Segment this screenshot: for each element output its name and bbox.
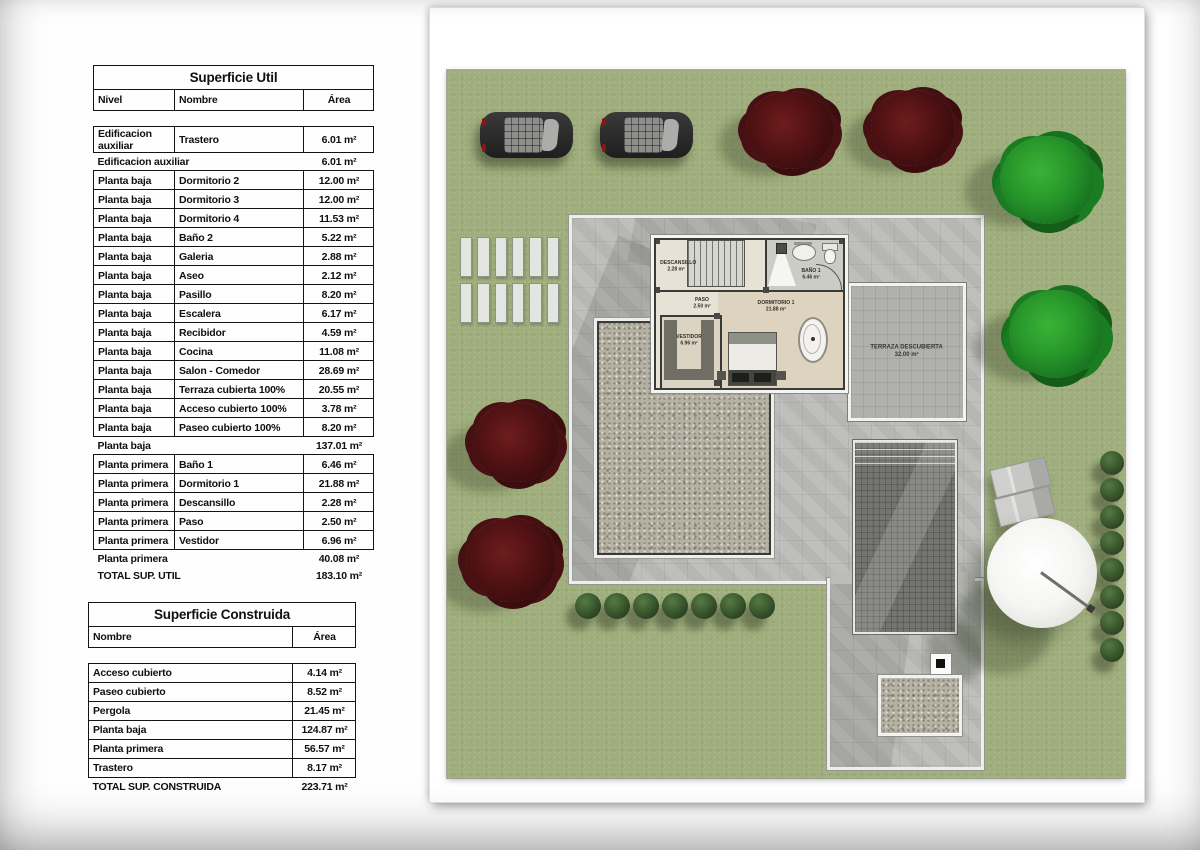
table-cell: Planta baja bbox=[94, 171, 175, 190]
table-cell: Escalera bbox=[175, 304, 304, 323]
table-cell: 6.01 m² bbox=[304, 127, 374, 153]
table-row: Planta bajaSalon - Comedor28.69 m² bbox=[94, 361, 374, 380]
bush bbox=[691, 593, 717, 619]
table-cell: Baño 2 bbox=[175, 228, 304, 247]
table-body: Acceso cubierto4.14 m²Paseo cubierto8.52… bbox=[89, 648, 356, 796]
table-cell: Planta baja bbox=[94, 380, 175, 399]
bush bbox=[720, 593, 746, 619]
table-cell: 6.17 m² bbox=[304, 304, 374, 323]
toilet bbox=[824, 249, 836, 264]
table-cell: Planta primera bbox=[89, 740, 293, 759]
table-cell: Paso bbox=[175, 512, 304, 531]
table-cell: 6.46 m² bbox=[304, 455, 374, 474]
table-body: Edificacion auxiliarTrastero6.01 m²Edifi… bbox=[94, 111, 374, 585]
pillar bbox=[714, 313, 720, 319]
table-cell: 8.52 m² bbox=[293, 683, 356, 702]
table-row: Planta baja137.01 m² bbox=[94, 437, 374, 455]
bush bbox=[575, 593, 601, 619]
pillar bbox=[654, 287, 660, 293]
bush bbox=[604, 593, 630, 619]
table-cell: Descansillo bbox=[175, 493, 304, 512]
bathtub-drain bbox=[811, 337, 815, 341]
table-row bbox=[89, 648, 356, 664]
table-cell: Edificacion auxiliar bbox=[94, 153, 304, 171]
table-cell: Planta primera bbox=[94, 550, 304, 568]
table-cell: Planta primera bbox=[94, 493, 175, 512]
bed bbox=[728, 332, 777, 386]
table-row: Planta bajaGaleria2.88 m² bbox=[94, 247, 374, 266]
column-header-area: Área bbox=[293, 627, 356, 648]
table-cell: Edificacion auxiliar bbox=[94, 127, 175, 153]
table-row: TOTAL SUP. UTIL183.10 m² bbox=[94, 567, 374, 584]
swimming-pool bbox=[853, 440, 957, 634]
table-row: Planta bajaPasillo8.20 m² bbox=[94, 285, 374, 304]
table-row: Planta bajaDormitorio 411.53 m² bbox=[94, 209, 374, 228]
parked-car bbox=[480, 112, 573, 158]
table-row: Planta primera56.57 m² bbox=[89, 740, 356, 759]
table-row: Planta baja124.87 m² bbox=[89, 721, 356, 740]
stone bbox=[512, 237, 524, 277]
table-cell: 6.96 m² bbox=[304, 531, 374, 550]
table-cell: Paseo cubierto bbox=[89, 683, 293, 702]
table-cell: 56.57 m² bbox=[293, 740, 356, 759]
table-row: Edificacion auxiliar6.01 m² bbox=[94, 153, 374, 171]
red-tree bbox=[746, 91, 834, 169]
room-label-bano1: BAÑO 1 6.46 m² bbox=[795, 268, 827, 281]
table-row: Planta primeraPaso2.50 m² bbox=[94, 512, 374, 531]
table-cell: 183.10 m² bbox=[304, 567, 374, 584]
table-cell: Planta primera bbox=[94, 512, 175, 531]
stepping-stones bbox=[460, 237, 559, 323]
table-cell: Planta baja bbox=[94, 228, 175, 247]
red-tree bbox=[871, 90, 955, 166]
car-taillight bbox=[482, 118, 486, 126]
table-cell: 40.08 m² bbox=[304, 550, 374, 568]
table-cell: 4.59 m² bbox=[304, 323, 374, 342]
table-cell: 2.12 m² bbox=[304, 266, 374, 285]
bush bbox=[749, 593, 775, 619]
car-taillight bbox=[602, 144, 606, 152]
stone bbox=[477, 283, 489, 323]
parked-car bbox=[600, 112, 693, 158]
table-cell: Planta baja bbox=[94, 247, 175, 266]
stone bbox=[460, 237, 472, 277]
table-row: Paseo cubierto8.52 m² bbox=[89, 683, 356, 702]
table-row: Planta bajaRecibidor4.59 m² bbox=[94, 323, 374, 342]
table-cell: Planta baja bbox=[89, 721, 293, 740]
red-tree bbox=[473, 402, 559, 482]
table-cell: Aseo bbox=[175, 266, 304, 285]
table-cell: 8.20 m² bbox=[304, 418, 374, 437]
bed-footboard bbox=[729, 333, 776, 344]
table-cell: Trastero bbox=[175, 127, 304, 153]
table-row: Planta bajaAseo2.12 m² bbox=[94, 266, 374, 285]
table-row: Planta bajaBaño 25.22 m² bbox=[94, 228, 374, 247]
bush bbox=[1100, 558, 1124, 582]
table-cell: Planta baja bbox=[94, 437, 304, 455]
table-cell: Planta baja bbox=[94, 266, 175, 285]
table-title: Superficie Construida bbox=[89, 603, 356, 627]
table-cell: 8.20 m² bbox=[304, 285, 374, 304]
table-cell: Planta baja bbox=[94, 209, 175, 228]
green-tree bbox=[1000, 136, 1094, 224]
table-row: Planta bajaAcceso cubierto 100%3.78 m² bbox=[94, 399, 374, 418]
table-cell: Planta baja bbox=[94, 304, 175, 323]
open-terrace: TERRAZA DESCUBIERTA 32.00 m² bbox=[848, 283, 966, 421]
bush bbox=[662, 593, 688, 619]
table-row: Planta primeraBaño 16.46 m² bbox=[94, 455, 374, 474]
table-cell: 6.01 m² bbox=[304, 153, 374, 171]
stone bbox=[529, 237, 541, 277]
table-title-row: Superficie Util bbox=[94, 66, 374, 90]
shower-head bbox=[776, 243, 787, 254]
bush bbox=[1100, 531, 1124, 555]
room-label-vestidor: VESTIDOR 6.96 m² bbox=[673, 334, 705, 347]
pillow bbox=[754, 373, 771, 382]
bush bbox=[1100, 585, 1124, 609]
room-label-dormitorio1: DORMITORIO 1 21.88 m² bbox=[753, 300, 799, 313]
car-roof bbox=[624, 117, 663, 153]
car-taillight bbox=[482, 144, 486, 152]
table-cell: 223.71 m² bbox=[293, 778, 356, 796]
dressing-room bbox=[660, 315, 722, 390]
pillar bbox=[763, 287, 769, 293]
table-row: Trastero8.17 m² bbox=[89, 759, 356, 778]
utility-box bbox=[930, 653, 952, 675]
stone bbox=[460, 283, 472, 323]
stone bbox=[495, 283, 507, 323]
table-cell: Planta baja bbox=[94, 323, 175, 342]
table-cell: 137.01 m² bbox=[304, 437, 374, 455]
stone bbox=[547, 237, 559, 277]
table-header-row: Nivel Nombre Área bbox=[94, 90, 374, 111]
table-cell: Dormitorio 2 bbox=[175, 171, 304, 190]
table-row: Planta bajaDormitorio 212.00 m² bbox=[94, 171, 374, 190]
table-cell: 4.14 m² bbox=[293, 664, 356, 683]
table-cell: Planta baja bbox=[94, 190, 175, 209]
table-cell: Pergola bbox=[89, 702, 293, 721]
table-cell: 11.08 m² bbox=[304, 342, 374, 361]
table-row: Planta bajaCocina11.08 m² bbox=[94, 342, 374, 361]
table-cell: Paseo cubierto 100% bbox=[175, 418, 304, 437]
car-windshield bbox=[541, 119, 559, 151]
car-taillight bbox=[602, 118, 606, 126]
table-cell: 28.69 m² bbox=[304, 361, 374, 380]
green-tree bbox=[1009, 290, 1103, 378]
column-header-nivel: Nivel bbox=[94, 90, 175, 111]
table-row: TOTAL SUP. CONSTRUIDA223.71 m² bbox=[89, 778, 356, 796]
nightstand bbox=[777, 371, 786, 380]
shed-gravel-pad bbox=[878, 675, 962, 736]
table-row: Planta primeraVestidor6.96 m² bbox=[94, 531, 374, 550]
table-cell: 11.53 m² bbox=[304, 209, 374, 228]
table-cell: Recibidor bbox=[175, 323, 304, 342]
table-cell: Planta baja bbox=[94, 361, 175, 380]
table-row: Edificacion auxiliarTrastero6.01 m² bbox=[94, 127, 374, 153]
table-cell: Pasillo bbox=[175, 285, 304, 304]
table-cell: Cocina bbox=[175, 342, 304, 361]
room-label-terraza: TERRAZA DESCUBIERTA 32.00 m² bbox=[871, 345, 943, 360]
red-tree bbox=[466, 518, 556, 602]
stone bbox=[512, 283, 524, 323]
table-title-row: Superficie Construida bbox=[89, 603, 356, 627]
table-cell: Planta primera bbox=[94, 531, 175, 550]
table-row: Planta primera40.08 m² bbox=[94, 550, 374, 568]
table-cell: Acceso cubierto bbox=[89, 664, 293, 683]
table-cell: Dormitorio 3 bbox=[175, 190, 304, 209]
table-row: Acceso cubierto4.14 m² bbox=[89, 664, 356, 683]
column-header-nombre: Nombre bbox=[89, 627, 293, 648]
bush bbox=[633, 593, 659, 619]
bush bbox=[1100, 451, 1124, 475]
table-cell: TOTAL SUP. UTIL bbox=[94, 567, 304, 584]
table-cell: Dormitorio 1 bbox=[175, 474, 304, 493]
car-windshield bbox=[661, 119, 679, 151]
bathroom-floor bbox=[767, 240, 843, 290]
table-cell: 5.22 m² bbox=[304, 228, 374, 247]
table-cell: Salon - Comedor bbox=[175, 361, 304, 380]
bush bbox=[1100, 478, 1124, 502]
table-cell: 20.55 m² bbox=[304, 380, 374, 399]
table-cell: 2.88 m² bbox=[304, 247, 374, 266]
table-row: Planta bajaEscalera6.17 m² bbox=[94, 304, 374, 323]
table-cell bbox=[89, 648, 356, 664]
table-cell: Planta baja bbox=[94, 418, 175, 437]
superficie-util-table: Superficie Util Nivel Nombre Área Edific… bbox=[93, 65, 374, 584]
table-cell: Trastero bbox=[89, 759, 293, 778]
table-cell: Planta baja bbox=[94, 342, 175, 361]
stone bbox=[495, 237, 507, 277]
table-cell: 12.00 m² bbox=[304, 171, 374, 190]
bush bbox=[1100, 638, 1124, 662]
table-cell: 2.50 m² bbox=[304, 512, 374, 531]
column-header-area: Área bbox=[304, 90, 374, 111]
pillow bbox=[732, 373, 749, 382]
superficie-construida-table: Superficie Construida Nombre Área Acceso… bbox=[88, 602, 356, 795]
table-cell: TOTAL SUP. CONSTRUIDA bbox=[89, 778, 293, 796]
stone bbox=[477, 237, 489, 277]
table-row: Planta primeraDescansillo2.28 m² bbox=[94, 493, 374, 512]
table-header-row: Nombre Área bbox=[89, 627, 356, 648]
table-cell: Baño 1 bbox=[175, 455, 304, 474]
car-roof bbox=[504, 117, 543, 153]
table-cell: 2.28 m² bbox=[304, 493, 374, 512]
site-plan-grass: TERRAZA DESCUBIERTA 32.00 m² bbox=[447, 70, 1125, 778]
pool-steps bbox=[855, 442, 955, 466]
utility-meter bbox=[936, 659, 945, 668]
pillar bbox=[839, 238, 845, 244]
table-cell: Planta baja bbox=[94, 285, 175, 304]
plan-sheet-page: Superficie Util Nivel Nombre Área Edific… bbox=[0, 0, 1200, 850]
room-label-paso: PASO 2.50 m² bbox=[689, 297, 715, 310]
stone bbox=[529, 283, 541, 323]
table-cell: Acceso cubierto 100% bbox=[175, 399, 304, 418]
pillar bbox=[714, 380, 720, 386]
table-title: Superficie Util bbox=[94, 66, 374, 90]
house-floorplan: DESCANSILLO 2.28 m² PASO 2.50 m² BAÑO 1 … bbox=[654, 238, 845, 390]
table-cell: Dormitorio 4 bbox=[175, 209, 304, 228]
pillar bbox=[654, 238, 660, 244]
table-row: Planta bajaDormitorio 312.00 m² bbox=[94, 190, 374, 209]
room-label-descansillo: DESCANSILLO 2.28 m² bbox=[660, 260, 692, 273]
sink bbox=[792, 244, 816, 261]
wardrobe bbox=[664, 369, 714, 380]
table-row: Planta primeraDormitorio 121.88 m² bbox=[94, 474, 374, 493]
table-cell: 124.87 m² bbox=[293, 721, 356, 740]
table-cell: Terraza cubierta 100% bbox=[175, 380, 304, 399]
bush bbox=[1100, 611, 1124, 635]
table-cell: Planta primera bbox=[94, 474, 175, 493]
table-row: Planta bajaTerraza cubierta 100%20.55 m² bbox=[94, 380, 374, 399]
table-cell: 8.17 m² bbox=[293, 759, 356, 778]
table-cell: 21.45 m² bbox=[293, 702, 356, 721]
table-cell: Planta primera bbox=[94, 455, 175, 474]
stone bbox=[547, 283, 559, 323]
table-cell: 12.00 m² bbox=[304, 190, 374, 209]
table-row bbox=[94, 111, 374, 127]
table-cell: Planta baja bbox=[94, 399, 175, 418]
table-row: Pergola21.45 m² bbox=[89, 702, 356, 721]
site-plan-frame: TERRAZA DESCUBIERTA 32.00 m² bbox=[430, 8, 1144, 802]
table-row: Planta bajaPaseo cubierto 100%8.20 m² bbox=[94, 418, 374, 437]
table-cell: 21.88 m² bbox=[304, 474, 374, 493]
bush bbox=[1100, 505, 1124, 529]
table-cell: Vestidor bbox=[175, 531, 304, 550]
table-cell bbox=[94, 111, 374, 127]
column-header-nombre: Nombre bbox=[175, 90, 304, 111]
parasol-pole-base bbox=[1086, 604, 1096, 614]
nightstand bbox=[717, 371, 726, 380]
table-cell: Galeria bbox=[175, 247, 304, 266]
bathtub bbox=[798, 317, 828, 363]
table-cell: 3.78 m² bbox=[304, 399, 374, 418]
